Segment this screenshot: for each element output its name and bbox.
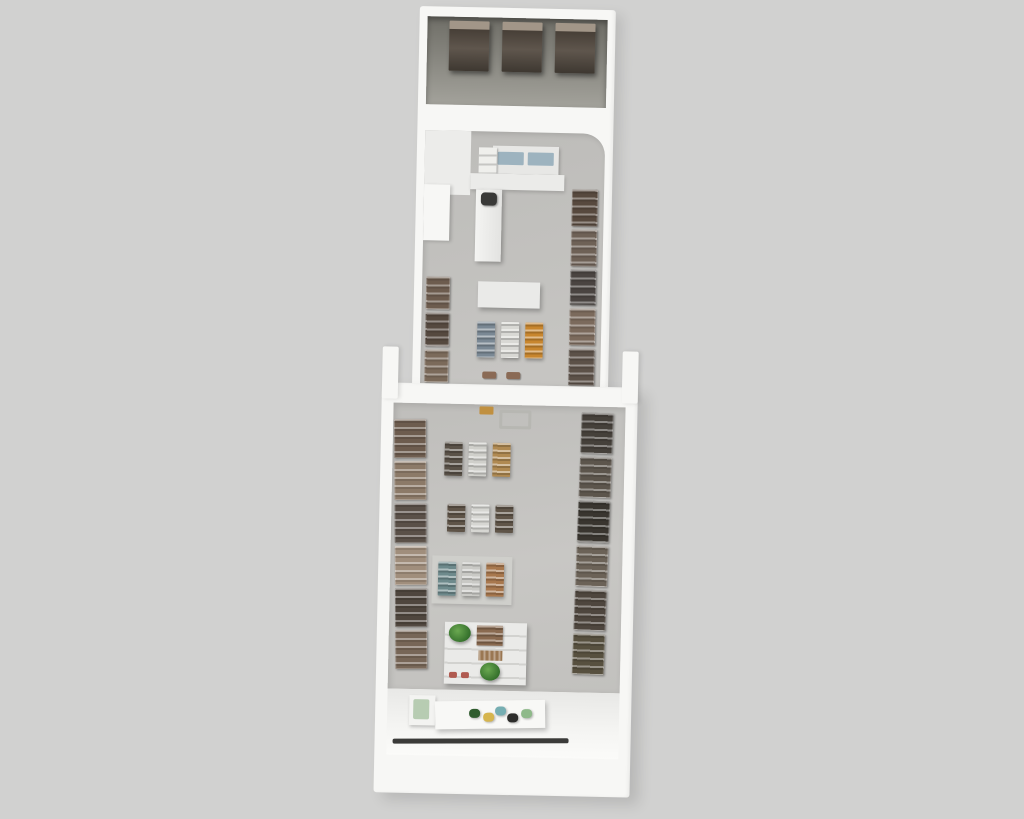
product-rack (444, 442, 463, 476)
product-rack (486, 563, 505, 597)
product-rack (438, 562, 457, 596)
passage-item (479, 406, 493, 414)
shelf-unit (573, 589, 607, 631)
wall-shelf-right-main (572, 412, 614, 675)
shelf-unit (395, 588, 427, 627)
product-blob (483, 713, 494, 722)
checkout-counter (475, 189, 503, 262)
shelf-unit (425, 313, 450, 347)
storefront-glass-strip (393, 738, 569, 743)
storage-rack (555, 23, 596, 74)
building-upper-wing (412, 6, 616, 394)
shelf-unit (578, 456, 612, 498)
shelf-unit (394, 461, 426, 500)
shelf-unit (577, 501, 611, 543)
wall-stub-left (382, 346, 399, 398)
product-rack (495, 505, 514, 533)
red-goods-item (461, 672, 469, 678)
storage-rack-row (426, 20, 607, 84)
shelf-unit (572, 633, 606, 675)
product-blob (507, 713, 518, 722)
shelf-unit (395, 630, 427, 669)
shelf-unit (426, 276, 451, 310)
cash-register (481, 192, 497, 205)
product-rack (492, 443, 511, 477)
shelf-unit (568, 348, 595, 385)
product-cluster-3 (438, 562, 505, 597)
small-goods-row (482, 371, 520, 379)
shelf-unit (575, 545, 609, 587)
shelf-unit (395, 545, 427, 584)
shelf-unit (570, 269, 597, 306)
plant-display-racks (478, 650, 502, 661)
product-rack (462, 562, 481, 596)
shelf-unit (569, 309, 596, 346)
plant-icon (449, 624, 471, 642)
red-goods-item (449, 672, 457, 678)
storage-room-floor (426, 16, 608, 108)
red-goods-row (449, 672, 469, 678)
shelf-unit (394, 503, 426, 542)
small-goods-item (506, 372, 520, 379)
plant-display-unit (444, 622, 527, 686)
passage-threshold (499, 410, 531, 430)
product-blob (495, 706, 506, 715)
wall-shelf-left-upper (424, 276, 450, 382)
small-goods-item (482, 371, 496, 378)
entrance-area-floor (386, 689, 619, 760)
main-retail-floor (388, 403, 626, 694)
display-table (478, 281, 541, 308)
shelf-unit (571, 229, 598, 266)
product-rack (525, 322, 544, 358)
product-rack (477, 321, 496, 357)
plant-display-racks (477, 625, 503, 646)
product-rack (471, 504, 490, 532)
wall-stub-right (622, 351, 639, 403)
store-building (366, 5, 652, 798)
shelf-item (498, 152, 524, 166)
product-rack (447, 504, 466, 532)
checkout-room-floor (420, 130, 605, 388)
entrance-display-table (435, 700, 545, 730)
backwall-shelf (492, 146, 559, 175)
shelf-unit (571, 189, 598, 226)
product-cluster-1 (444, 442, 511, 477)
shelf-unit (394, 419, 426, 458)
shelf-item (528, 152, 554, 166)
storage-rack (449, 21, 490, 72)
wall-shelf-right-upper (568, 189, 598, 386)
storage-rack (502, 22, 543, 73)
side-unit-goods (413, 699, 429, 719)
alcove-wall (423, 184, 450, 241)
product-rack (501, 322, 520, 358)
product-blob (521, 709, 532, 718)
product-cluster-2 (447, 504, 514, 533)
counter-platform (470, 173, 564, 191)
shelf-unit (424, 349, 449, 383)
plant-icon (480, 662, 500, 680)
wall-shelf-left-main (394, 419, 427, 669)
entrance-side-unit (409, 695, 436, 726)
product-rack (468, 442, 487, 476)
shelf-unit (580, 412, 614, 454)
floorplan-render (0, 0, 1024, 819)
building-lower-wing (373, 382, 638, 797)
product-blob (469, 709, 480, 718)
product-cluster-checkout (477, 321, 544, 358)
